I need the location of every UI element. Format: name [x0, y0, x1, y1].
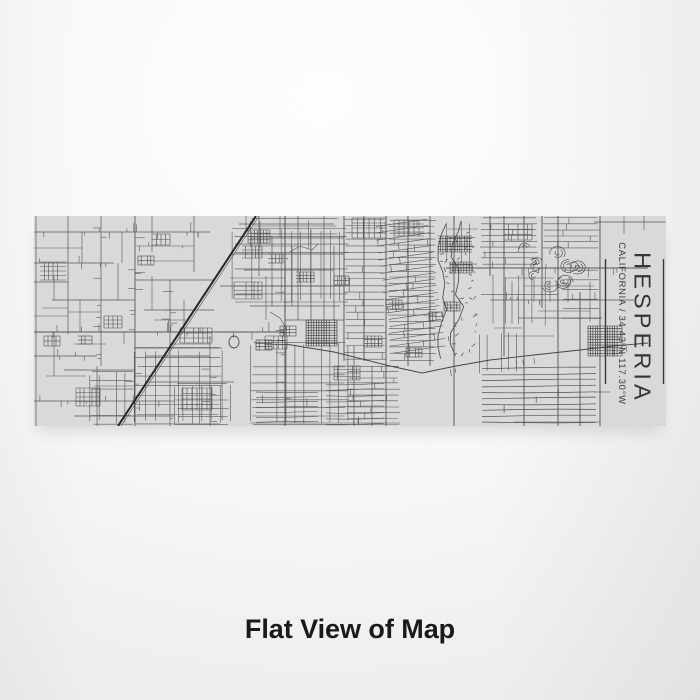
svg-text:CALIFORNIA / 34.43°N 117.30°W: CALIFORNIA / 34.43°N 117.30°W — [617, 242, 628, 404]
svg-text:HESPERIA: HESPERIA — [630, 252, 656, 404]
